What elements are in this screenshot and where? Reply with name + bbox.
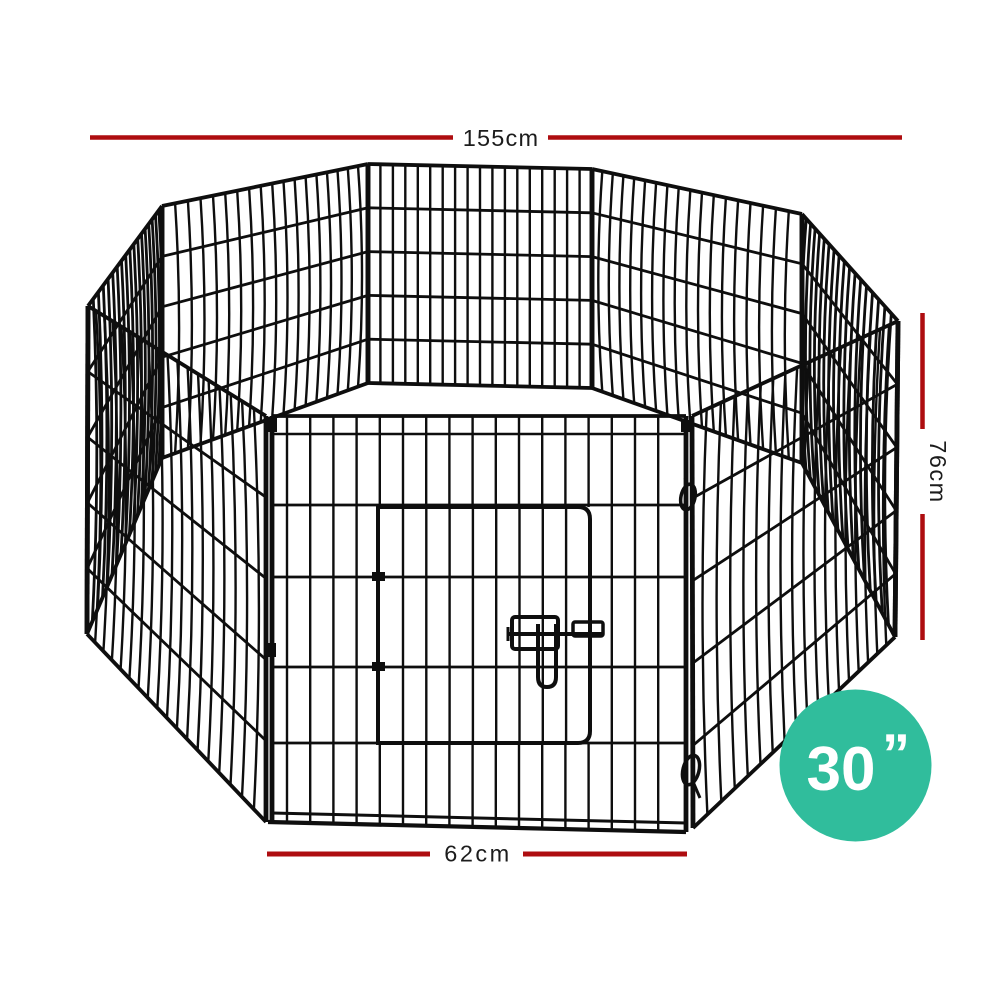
svg-text:30: 30 xyxy=(807,735,876,804)
svg-text:”: ” xyxy=(882,722,910,785)
svg-text:155cm: 155cm xyxy=(463,125,540,151)
svg-text:76cm: 76cm xyxy=(925,440,951,503)
svg-text:62cm: 62cm xyxy=(444,841,511,867)
